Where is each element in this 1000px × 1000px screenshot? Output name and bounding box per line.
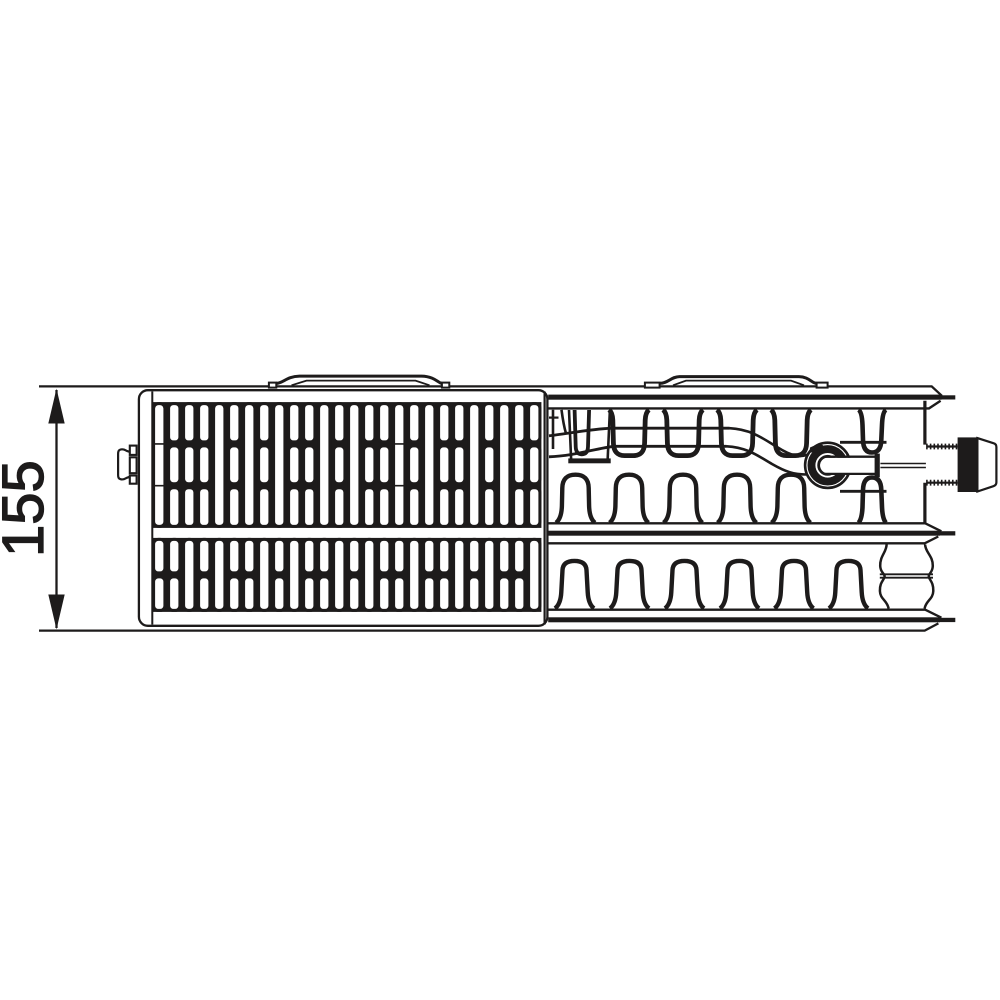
svg-text:155: 155 xyxy=(0,460,56,557)
